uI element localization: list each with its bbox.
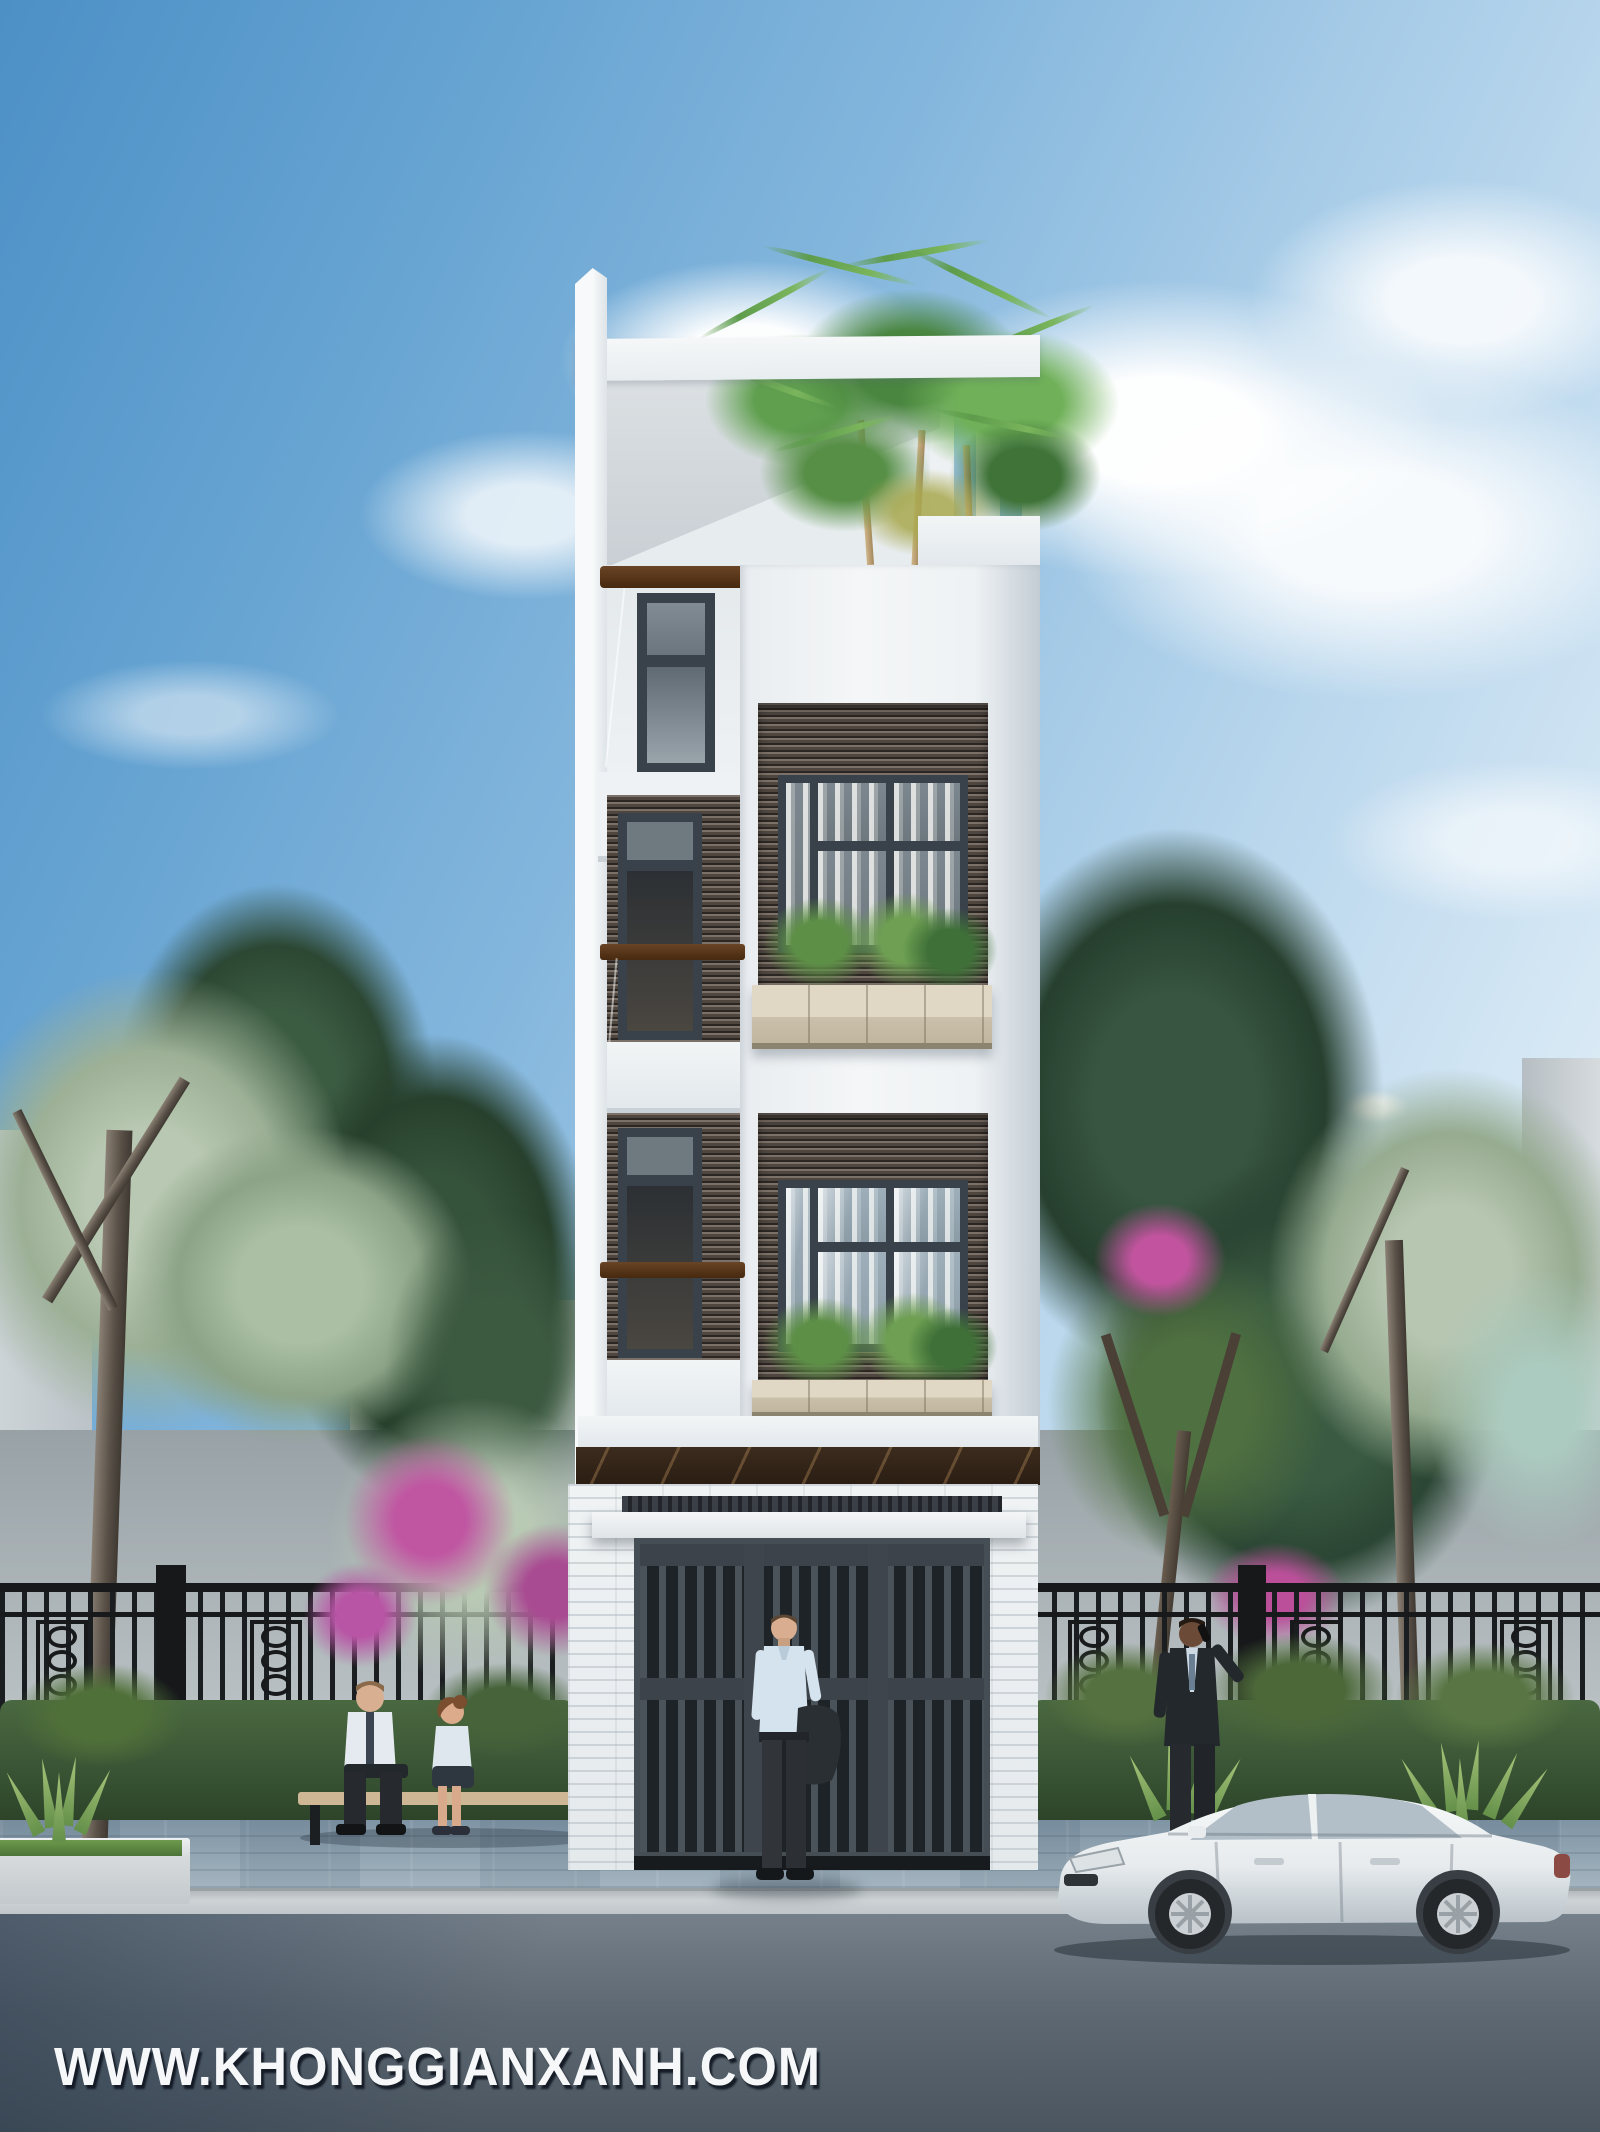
stone-planter-lower (752, 1380, 992, 1418)
car-door-handle (1370, 1858, 1400, 1865)
scroll-ornament (261, 1626, 291, 1648)
seated-man (336, 1681, 408, 1835)
door-transom-glass (647, 603, 705, 655)
recessed-door-upper (618, 813, 702, 1040)
bougainvillea-flowers (300, 1560, 420, 1670)
parapet-beam (575, 335, 1040, 381)
bush (1390, 1640, 1580, 1755)
car-door-handle (1254, 1858, 1284, 1865)
wood-handrail (600, 1262, 745, 1278)
architectural-render: WWW.KHONGGIANXANH.COM (0, 0, 1600, 2132)
entry-canopy (592, 1512, 1026, 1538)
scroll-ornament (47, 1626, 77, 1648)
bench-seat (298, 1792, 598, 1805)
car-beltline (1168, 1834, 1492, 1836)
spiky-plant (6, 1756, 126, 1846)
cloud (40, 660, 340, 770)
car-front-wheel (1155, 1879, 1225, 1949)
man-at-gate (728, 1612, 848, 1896)
gate-top-rail (640, 1544, 984, 1566)
car-grille (1064, 1874, 1098, 1886)
stone-planter-upper (752, 985, 992, 1049)
facade-left-pillar (575, 268, 607, 1490)
car-shadow (1054, 1935, 1570, 1965)
white-sedan (1040, 1750, 1588, 1975)
window-transom (894, 1188, 960, 1242)
bush (10, 1660, 190, 1770)
road-shading (0, 1914, 700, 2132)
street-planter (0, 1838, 190, 1904)
car-mirror (1188, 1826, 1206, 1838)
roof-planter-wall (918, 516, 1040, 566)
planter-plants (900, 905, 1000, 995)
car-taillight (1554, 1854, 1570, 1878)
parapet-band (607, 1360, 740, 1420)
recessed-door-lower (618, 1128, 702, 1358)
watermark-url: WWW.KHONGGIANXANH.COM (54, 2036, 821, 2098)
window-transom (818, 783, 886, 841)
window-transom (818, 1188, 886, 1242)
floor-band (578, 1416, 1038, 1448)
planter-plants (905, 1305, 1000, 1390)
door-glass (647, 667, 705, 763)
wood-handrail (600, 944, 745, 960)
marble-band (576, 1447, 1040, 1485)
door-transom-glass (627, 1137, 693, 1175)
seated-woman (432, 1695, 474, 1835)
door-transom-glass (627, 822, 693, 860)
fence-top-rail (1030, 1583, 1600, 1592)
plumeria-flowers (1090, 1200, 1230, 1320)
bench-leg (310, 1805, 320, 1845)
parapet-band (607, 1042, 740, 1113)
car-rear-wheel (1423, 1879, 1493, 1949)
terrace-door (637, 593, 715, 773)
gate-stile (868, 1544, 888, 1852)
window-transom (894, 783, 960, 841)
fence-rail (1030, 1612, 1600, 1617)
